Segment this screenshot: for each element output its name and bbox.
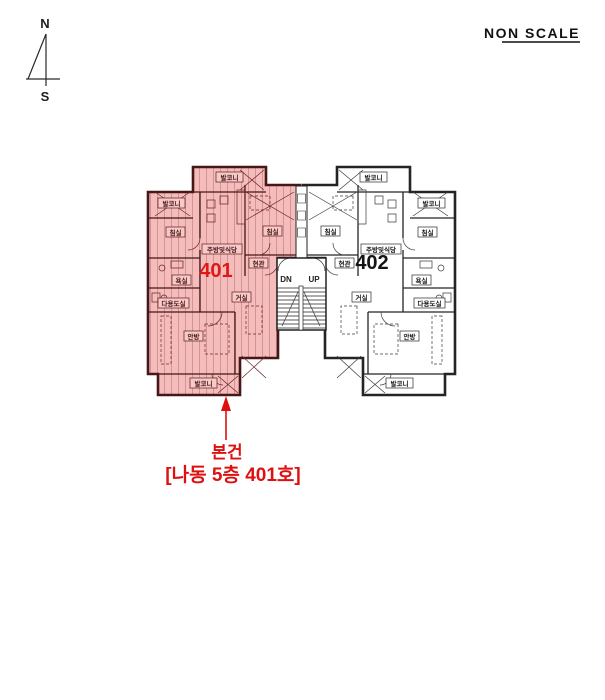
room-label-balcony-bottom-401: 발코니 — [195, 379, 213, 388]
stair-down-label: DN — [280, 275, 292, 284]
floorplan-drawing: N S NON SCALE DN UP 발코니 발코니 침실 침실 주방및식당 … — [0, 0, 605, 700]
room-label-balcony-bottom-402: 발코니 — [391, 379, 409, 388]
page: N S NON SCALE DN UP 발코니 발코니 침실 침실 주방및식당 … — [0, 0, 605, 700]
room-label-living-401: 거실 — [236, 293, 248, 302]
subject-callout: 본건 [나동 5층 401호] — [165, 396, 300, 486]
room-label-bedroom-left-401: 침실 — [170, 228, 182, 237]
compass-south-label: S — [41, 89, 50, 104]
room-label-entrance-402: 현관 — [339, 259, 351, 268]
room-label-entrance-401: 현관 — [253, 259, 265, 268]
room-label-master-401: 안방 — [188, 332, 200, 341]
compass-needle — [26, 34, 60, 86]
room-label-bedroom-left-402: 침실 — [325, 227, 337, 236]
scale-note-text: NON SCALE — [484, 25, 580, 41]
stair-rail — [299, 286, 303, 330]
room-label-balcony-side-401: 발코니 — [163, 199, 181, 208]
room-label-utility-402: 다용도실 — [418, 299, 442, 308]
stair-up-label: UP — [308, 275, 320, 284]
room-label-master-402: 안방 — [404, 332, 416, 341]
room-label-balcony-top-402: 발코니 — [365, 173, 383, 182]
compass: N S — [26, 16, 60, 104]
callout-arrow-head — [221, 396, 231, 411]
callout-line1: 본건 — [211, 443, 242, 462]
scale-note: NON SCALE — [484, 25, 580, 42]
room-label-bathroom-401: 욕실 — [176, 276, 188, 285]
room-label-balcony-side-402: 발코니 — [423, 199, 441, 208]
room-label-living-402: 거실 — [356, 293, 368, 302]
room-label-kitchen-401: 주방및식당 — [207, 245, 237, 254]
compass-north-label: N — [40, 16, 49, 31]
unit-402-number: 402 — [355, 252, 388, 274]
room-label-utility-401: 다용도실 — [162, 299, 186, 308]
room-label-bedroom-right-401: 침실 — [267, 227, 279, 236]
room-label-bathroom-402: 욕실 — [416, 276, 428, 285]
room-label-balcony-top-401: 발코니 — [221, 173, 239, 182]
unit-401-number: 401 — [199, 260, 232, 282]
callout-line2: [나동 5층 401호] — [165, 464, 300, 486]
room-label-bedroom-right-402: 침실 — [422, 228, 434, 237]
